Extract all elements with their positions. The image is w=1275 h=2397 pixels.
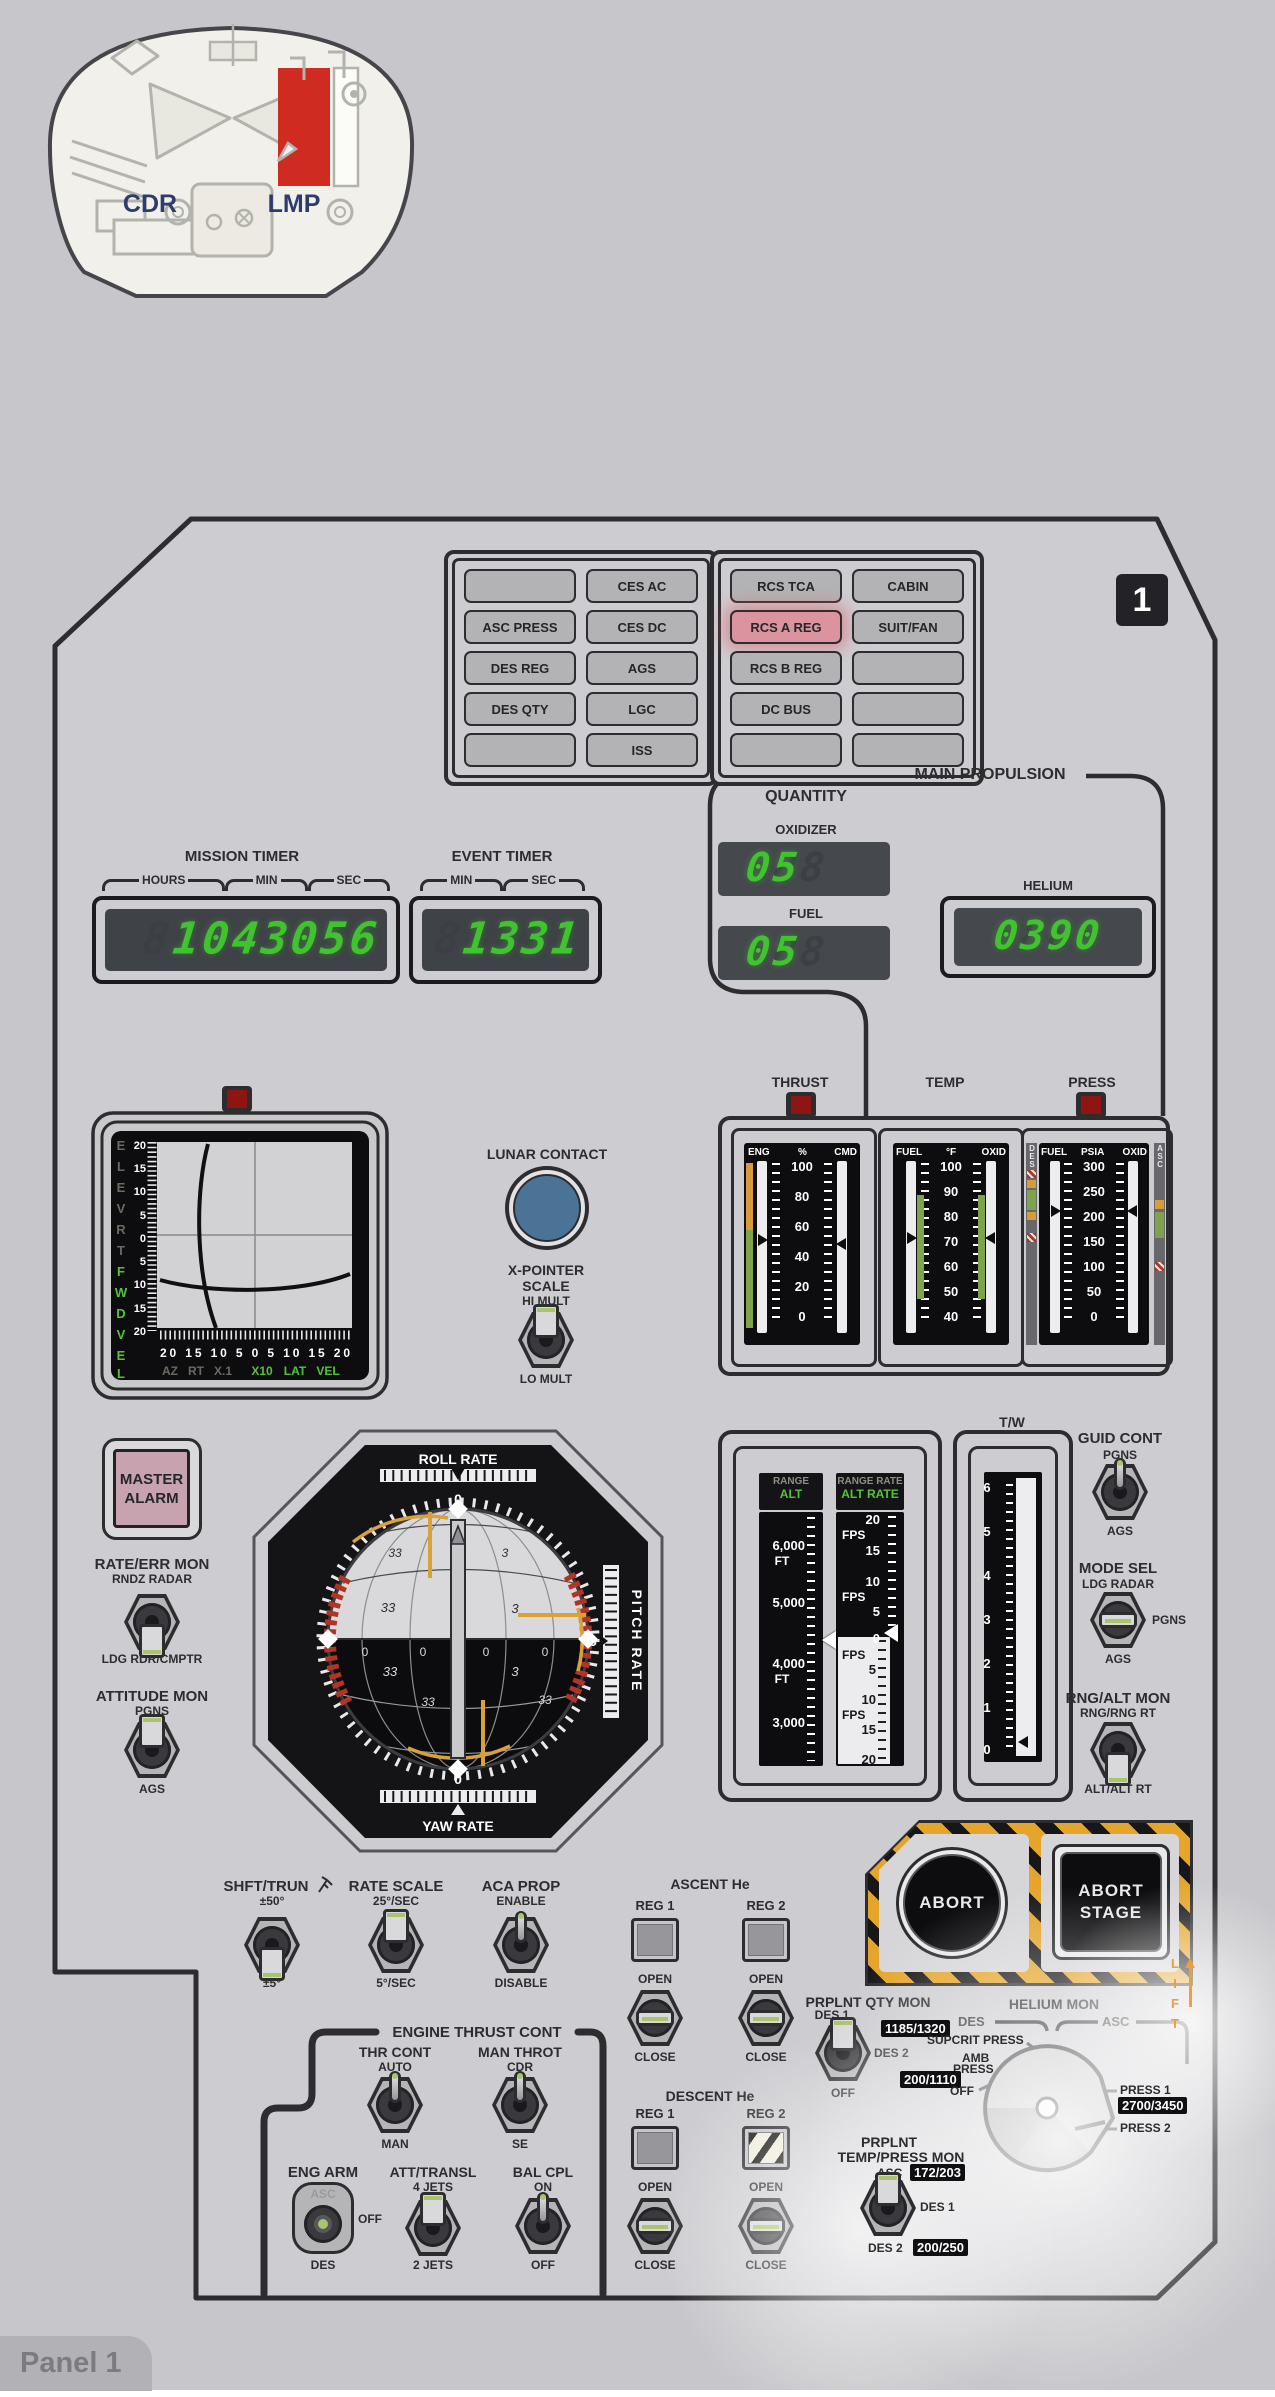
lift-indicator: LIFT: [1168, 1954, 1182, 2034]
rate-scale-up-label: 25°/SEC: [373, 1894, 419, 1908]
svg-text:33: 33: [538, 1693, 552, 1707]
cdr-label: CDR: [123, 190, 177, 218]
qty-mon-right-label: DES 2: [874, 2046, 909, 2060]
caution-light: [852, 651, 964, 685]
svg-text:X.1: X.1: [214, 1364, 232, 1378]
ascent-reg1-talkback: [631, 1918, 679, 1962]
eng-arm-down-label: DES: [311, 2258, 336, 2272]
ascent-reg1-switch[interactable]: [627, 1990, 683, 2046]
svg-text:W: W: [115, 1285, 128, 1300]
warning-light-ces-ac: CES AC: [586, 569, 698, 603]
attitude-mon-switch[interactable]: [124, 1722, 180, 1778]
ascent-reg2-switch[interactable]: [738, 1990, 794, 2046]
qty-mon-switch[interactable]: [815, 2025, 871, 2081]
temp-band-green-left: [917, 1195, 924, 1299]
att-transl-title: ATT/TRANSL: [390, 2164, 477, 2180]
caution-light-rcs-b-reg: RCS B REG: [730, 651, 842, 685]
ascent-reg2-label: REG 2: [746, 1898, 785, 1913]
abort-button[interactable]: ABORT: [896, 1847, 1008, 1959]
descent-reg2-talkback-barber: [742, 2126, 790, 2170]
descent-reg2-open-label: OPEN: [749, 2180, 783, 2194]
alt-tape: 6,000 FT 5,000 4,000 FT 3,000: [759, 1512, 823, 1766]
svg-text:AZ: AZ: [162, 1364, 178, 1378]
svg-text:10: 10: [134, 1279, 146, 1291]
descent-reg1-switch[interactable]: [627, 2198, 683, 2254]
x-pointer-instrument: 20 15 10 5 0 5 10 15 20 E L E V R T F W …: [90, 1088, 392, 1402]
descent-reg2-close-label: CLOSE: [745, 2258, 786, 2272]
page-tab: Panel 1: [0, 2336, 152, 2391]
warning-light: [464, 569, 576, 603]
eng-arm-mid-label: OFF: [358, 2212, 382, 2226]
att-transl-down-label: 2 JETS: [413, 2258, 453, 2272]
antenna-icon: [316, 1876, 334, 1894]
caution-light-suit-fan: SUIT/FAN: [852, 610, 964, 644]
caution-light: [852, 733, 964, 767]
aca-prop-up-label: ENABLE: [496, 1894, 545, 1908]
page-tab-label: Panel 1: [20, 2347, 122, 2380]
mode-sel-switch[interactable]: [1090, 1592, 1146, 1648]
helium-mon-title: HELIUM MON: [1009, 1996, 1099, 2012]
svg-text:10: 10: [134, 1186, 146, 1198]
supcrit-press-label: SUPCRIT PRESS: [927, 2033, 1024, 2047]
thrust-gauge: ENG % CMD 100 80 60 40 20 0: [731, 1128, 877, 1367]
press2-label: PRESS 2: [1120, 2121, 1171, 2135]
panel-number-badge: 1: [1116, 574, 1168, 626]
rate-scale-down-label: 5°/SEC: [376, 1976, 415, 1990]
thrust-caution-lamp: [786, 1092, 816, 1118]
helium-display-frame: 8888 0390: [940, 896, 1156, 978]
temp-fuel-pointer: [907, 1232, 917, 1244]
rng-alt-mon-up-label: RNG/RNG RT: [1080, 1706, 1156, 1720]
warning-light-ags: AGS: [586, 651, 698, 685]
attitude-mon-title: ATTITUDE MON: [96, 1688, 208, 1705]
press-asc-strip: ASC: [1154, 1143, 1165, 1345]
alt-tape-header: RANGE ALT: [759, 1473, 823, 1510]
aca-prop-switch[interactable]: [493, 1917, 549, 1973]
thr-cont-down-label: MAN: [381, 2137, 408, 2151]
mission-timer-title: MISSION TIMER: [185, 848, 299, 865]
prplnt-temp-mon-title2: TEMP/PRESS MON: [838, 2149, 965, 2165]
alt-rate-tape-header: RANGE RATE ALT RATE: [836, 1473, 904, 1510]
alt-rate-pointer: [884, 1624, 898, 1642]
press-title: PRESS: [1068, 1074, 1115, 1090]
abort-stage-button[interactable]: ABORTSTAGE: [1052, 1844, 1170, 1960]
lunar-contact-light: [505, 1166, 589, 1250]
fuel-label: FUEL: [789, 906, 823, 921]
caution-light-dc-bus: DC BUS: [730, 692, 842, 726]
svg-text:33: 33: [421, 1695, 435, 1709]
rate-err-mon-title: RATE/ERR MON: [95, 1556, 210, 1573]
eng-arm-switch[interactable]: ASC: [292, 2182, 354, 2254]
svg-text:L: L: [117, 1366, 125, 1381]
svg-text:E: E: [117, 1180, 126, 1195]
lift-arrow-shaft: [1189, 1967, 1192, 2007]
master-alarm-button[interactable]: MASTERALARM: [113, 1449, 190, 1528]
svg-text:V: V: [117, 1201, 126, 1216]
qty-mon-down-label: OFF: [831, 2086, 855, 2100]
press1-value-badge: 2700/3450: [1118, 2097, 1187, 2114]
svg-text:LAT: LAT: [284, 1364, 307, 1378]
svg-text:0: 0: [589, 1633, 597, 1649]
quantity-title: QUANTITY: [765, 788, 847, 806]
prplnt-temp-mon-title1: PRPLNT: [861, 2134, 917, 2150]
warning-light-des-qty: DES QTY: [464, 692, 576, 726]
svg-text:X10: X10: [251, 1364, 273, 1378]
attitude-mon-down-label: AGS: [139, 1782, 165, 1796]
oxidizer-label: OXIDIZER: [775, 822, 836, 837]
xpointer-scale-title1: X-POINTER: [508, 1262, 584, 1278]
tw-gauge: 6 5 4 3 2 1 0: [953, 1430, 1073, 1802]
caution-light-cabin: CABIN: [852, 569, 964, 603]
caution-light-matrix: RCS TCA CABIN RCS A REG SUIT/FAN RCS B R…: [710, 550, 984, 786]
eng-arm-title: ENG ARM: [288, 2164, 358, 2181]
warning-light-lgc: LGC: [586, 692, 698, 726]
man-throt-down-label: SE: [512, 2137, 528, 2151]
ascent-reg2-close-label: CLOSE: [745, 2050, 786, 2064]
ascent-he-title: ASCENT He: [670, 1876, 749, 1892]
rate-scale-title: RATE SCALE: [349, 1878, 444, 1895]
tw-pointer: [1018, 1736, 1028, 1748]
svg-text:0: 0: [454, 1771, 462, 1787]
event-timer-units: MIN SEC: [420, 872, 585, 888]
mode-sel-mid-label: PGNS: [1152, 1613, 1186, 1627]
mode-sel-title: MODE SEL: [1079, 1560, 1157, 1577]
descent-reg1-close-label: CLOSE: [634, 2258, 675, 2272]
man-throt-switch[interactable]: [492, 2077, 548, 2133]
att-transl-switch[interactable]: [405, 2200, 461, 2256]
warning-light-iss: ISS: [586, 733, 698, 767]
lmp-label: LMP: [268, 190, 321, 218]
roll-rate-label: ROLL RATE: [419, 1451, 498, 1467]
caution-light-rcs-tca: RCS TCA: [730, 569, 842, 603]
guid-cont-title: GUID CONT: [1078, 1430, 1162, 1447]
shft-trun-up-label: ±50°: [260, 1894, 285, 1908]
warning-light-asc-press: ASC PRESS: [464, 610, 576, 644]
descent-he-title: DESCENT He: [666, 2088, 755, 2104]
svg-text:20: 20: [134, 1326, 146, 1338]
svg-text:VEL: VEL: [316, 1364, 339, 1378]
press-fuel-pointer: [1051, 1205, 1061, 1217]
bal-cpl-down-label: OFF: [531, 2258, 555, 2272]
helium-off-label: OFF: [950, 2084, 974, 2098]
svg-text:RT: RT: [188, 1364, 205, 1378]
press-des-strip: DES: [1026, 1143, 1037, 1345]
temp-mon-asc-badge: 172/203: [910, 2164, 965, 2181]
rate-err-mon-switch[interactable]: [124, 1594, 180, 1650]
descent-reg1-open-label: OPEN: [638, 2180, 672, 2194]
descent-reg1-talkback: [631, 2126, 679, 2170]
xpointer-scale-switch[interactable]: [518, 1312, 574, 1368]
bottom-white-strip: [0, 2390, 1275, 2397]
temp-gauge: FUEL °F OXID 100 90 80 70 60 50 40: [878, 1128, 1024, 1367]
press-caution-lamp: [1076, 1092, 1106, 1118]
cockpit-locator-diagram: CDR LMP: [42, 6, 420, 302]
alt-pointer: [822, 1631, 836, 1649]
oxidizer-display: 888 05: [718, 842, 890, 896]
fdai-attitude-indicator: ROLL RATE 0 33 3 33 3 0 0 0 0: [248, 1428, 672, 1858]
rate-scale-switch[interactable]: [368, 1917, 424, 1973]
helium-asc-label: ASC: [1102, 2014, 1129, 2029]
mode-sel-down-label: AGS: [1105, 1652, 1131, 1666]
press-oxid-pointer: [1127, 1205, 1137, 1217]
svg-text:T: T: [117, 1243, 125, 1258]
thrust-title: THRUST: [772, 1074, 829, 1090]
svg-text:15: 15: [134, 1163, 146, 1175]
svg-text:L: L: [117, 1159, 125, 1174]
svg-text:5: 5: [140, 1256, 146, 1268]
shft-trun-switch[interactable]: [244, 1917, 300, 1973]
panel-1-page: CDR LMP CES AC ASC PRESS CES DC DES REG …: [0, 0, 1275, 2397]
man-throt-title: MAN THROT: [478, 2044, 562, 2060]
descent-reg1-label: REG 1: [635, 2106, 674, 2121]
temp-band-green-right: [978, 1195, 985, 1299]
svg-text:3: 3: [502, 1546, 509, 1560]
caution-light: [852, 692, 964, 726]
helium-des-label: DES: [958, 2014, 985, 2029]
svg-text:33: 33: [388, 1546, 402, 1560]
bal-cpl-title: BAL CPL: [513, 2164, 573, 2180]
warning-light-matrix: CES AC ASC PRESS CES DC DES REG AGS DES …: [444, 550, 718, 786]
svg-text:33: 33: [383, 1664, 398, 1679]
xpointer-scale-down-label: LO MULT: [520, 1372, 572, 1386]
temp-mon-des2-label: DES 2: [868, 2241, 903, 2255]
caution-light-rcs-a-reg-lit: RCS A REG: [730, 610, 842, 644]
press1-label: PRESS 1: [1120, 2083, 1171, 2097]
lunar-contact-label: LUNAR CONTACT: [487, 1146, 607, 1162]
thrust-eng-pointer: [758, 1234, 768, 1246]
warning-light-des-reg: DES REG: [464, 651, 576, 685]
bal-cpl-switch[interactable]: [515, 2198, 571, 2254]
descent-reg2-switch[interactable]: [738, 2198, 794, 2254]
svg-text:R: R: [116, 1222, 126, 1237]
svg-text:33: 33: [381, 1600, 396, 1615]
mode-sel-up-label: LDG RADAR: [1082, 1577, 1154, 1591]
temp-mon-des2-badge: 200/250: [913, 2239, 968, 2256]
main-propulsion-title: MAIN PROPULSION: [914, 766, 1065, 784]
range-alt-instrument: [718, 1430, 942, 1802]
aca-prop-down-label: DISABLE: [495, 1976, 548, 1990]
mission-timer-display: 88888888 1043056: [92, 896, 400, 984]
yaw-rate-label: YAW RATE: [422, 1818, 494, 1834]
svg-text:0: 0: [483, 1645, 490, 1659]
thrust-band-orange: [746, 1163, 753, 1230]
rng-alt-mon-title: RNG/ALT MON: [1066, 1690, 1171, 1707]
event-timer-display: 88888 1331: [409, 896, 602, 984]
svg-text:0: 0: [140, 1233, 146, 1245]
temp-mon-switch[interactable]: [860, 2180, 916, 2236]
xpointer-scale-title2: SCALE: [522, 1278, 569, 1294]
rate-err-mon-up-label: RNDZ RADAR: [112, 1572, 192, 1586]
thr-cont-switch[interactable]: [367, 2077, 423, 2133]
svg-text:20 15 10 5 0 5 10 15 20: 20 15 10 5 0 5 10 15 20: [160, 1346, 350, 1360]
ascent-reg1-close-label: CLOSE: [634, 2050, 675, 2064]
svg-text:0: 0: [362, 1645, 369, 1659]
svg-text:V: V: [117, 1327, 126, 1342]
guid-cont-down-label: AGS: [1107, 1524, 1133, 1538]
svg-text:E: E: [117, 1138, 126, 1153]
engine-thrust-cont-title: ENGINE THRUST CONT: [392, 2024, 561, 2041]
xpointer-caution-lamp: [222, 1086, 252, 1112]
svg-text:15: 15: [134, 1303, 146, 1315]
panel1-highlight: [278, 68, 330, 186]
shft-trun-title: SHFT/TRUN: [224, 1878, 309, 1895]
warning-light: [464, 733, 576, 767]
ascent-reg1-label: REG 1: [635, 1898, 674, 1913]
temp-title: TEMP: [926, 1074, 965, 1090]
fdai-center-pointer: [451, 1520, 465, 1758]
tw-title: T/W: [999, 1414, 1025, 1430]
svg-text:F: F: [117, 1264, 125, 1279]
thrust-band-green: [746, 1230, 753, 1328]
aca-prop-title: ACA PROP: [482, 1878, 561, 1895]
ascent-reg2-talkback: [742, 1918, 790, 1962]
ascent-reg1-open-label: OPEN: [638, 1972, 672, 1986]
rng-alt-mon-switch[interactable]: [1090, 1722, 1146, 1778]
ascent-reg2-open-label: OPEN: [749, 1972, 783, 1986]
mission-timer-units: HOURS MIN SEC: [102, 872, 390, 888]
temp-oxid-pointer: [985, 1232, 995, 1244]
svg-text:0: 0: [420, 1645, 427, 1659]
svg-text:E: E: [117, 1348, 126, 1363]
master-alarm-bezel: MASTERALARM: [102, 1438, 202, 1540]
press-gauge: DES FUEL PSIA OXID 300 250 200 150 100 5…: [1021, 1128, 1173, 1367]
fuel-display: 888 05: [718, 926, 890, 980]
guid-cont-switch[interactable]: [1092, 1464, 1148, 1520]
svg-text:0: 0: [542, 1645, 549, 1659]
helium-label: HELIUM: [1023, 878, 1073, 893]
thrust-cmd-pointer: [836, 1238, 846, 1250]
temp-mon-des1-label: DES 1: [920, 2200, 955, 2214]
svg-text:3: 3: [511, 1664, 519, 1679]
pitch-rate-label: PITCH RATE: [629, 1590, 645, 1693]
caution-light: [730, 733, 842, 767]
svg-text:5: 5: [140, 1210, 146, 1222]
thr-cont-title: THR CONT: [359, 2044, 431, 2060]
warning-light-ces-dc: CES DC: [586, 610, 698, 644]
svg-text:D: D: [116, 1306, 125, 1321]
event-timer-title: EVENT TIMER: [452, 848, 553, 865]
descent-reg2-label: REG 2: [746, 2106, 785, 2121]
svg-text:20: 20: [134, 1140, 146, 1152]
